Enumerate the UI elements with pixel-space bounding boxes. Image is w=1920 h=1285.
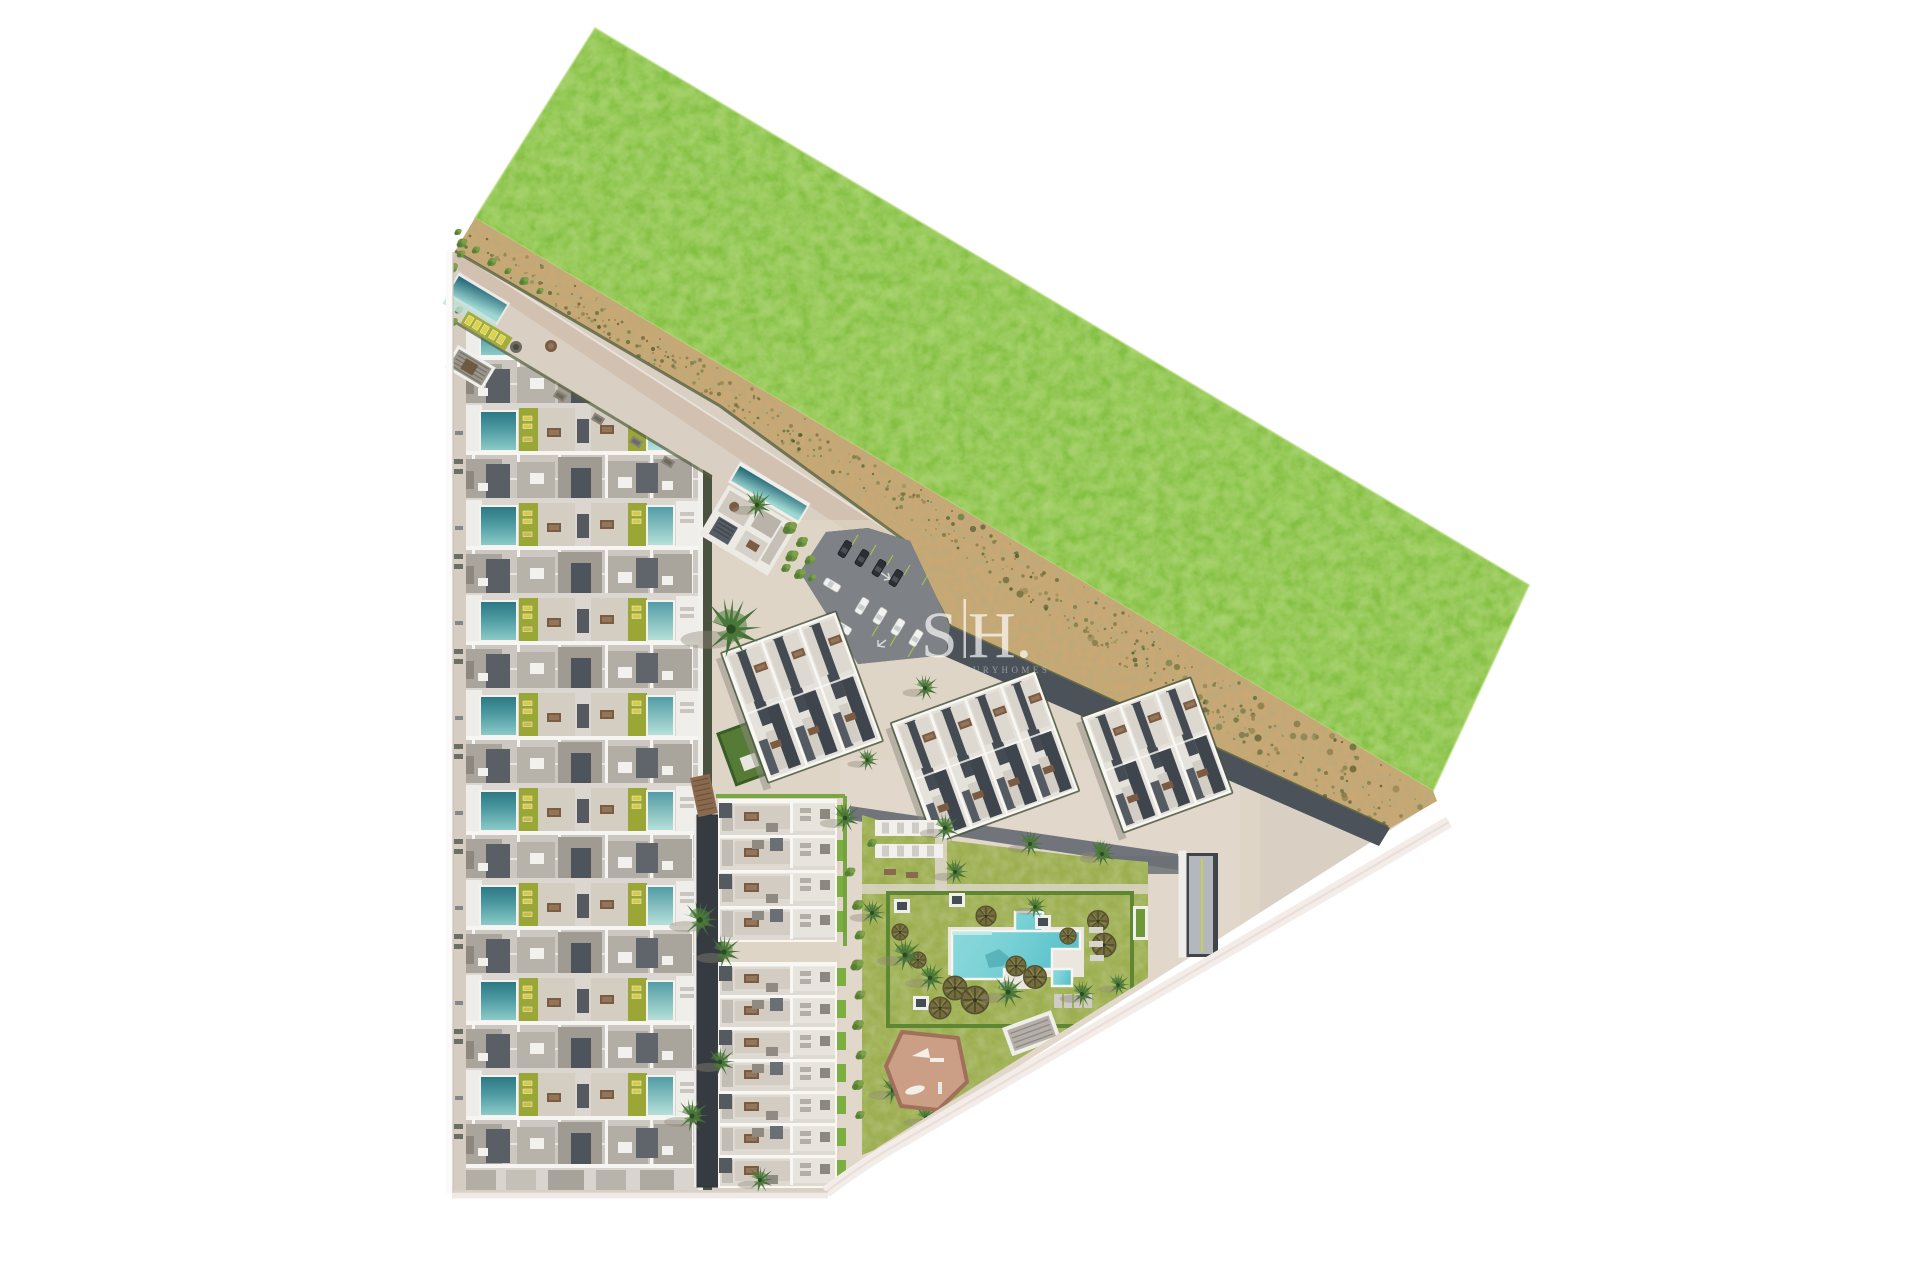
svg-text:S I N G U L A R L U X U R Y: S I N G U L A R L U X U R Y H O M E S <box>873 665 1048 675</box>
svg-text:H.: H. <box>968 599 1032 672</box>
svg-text:S: S <box>921 599 958 672</box>
